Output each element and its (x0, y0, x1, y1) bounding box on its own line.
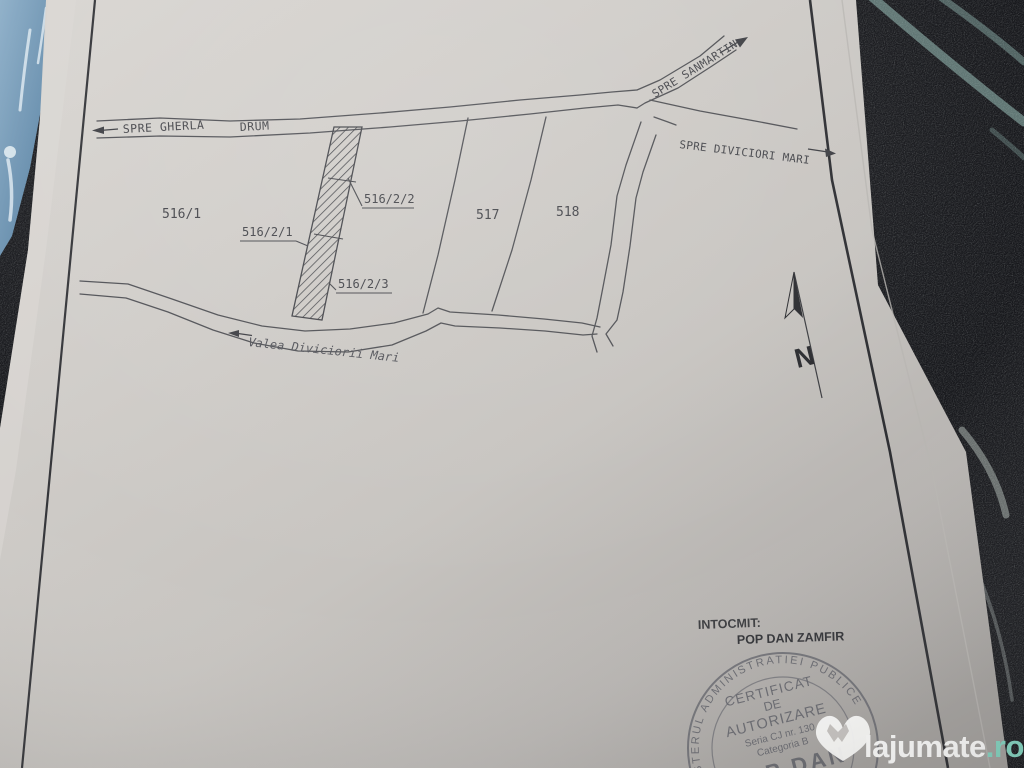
plan-canvas: N SPRE GHERLA DRUM SPRE SANMARTIN SPRE D… (0, 0, 1024, 768)
photo-vignette (0, 0, 1024, 768)
photo-of-cadastral-plan: N SPRE GHERLA DRUM SPRE SANMARTIN SPRE D… (0, 0, 1024, 768)
